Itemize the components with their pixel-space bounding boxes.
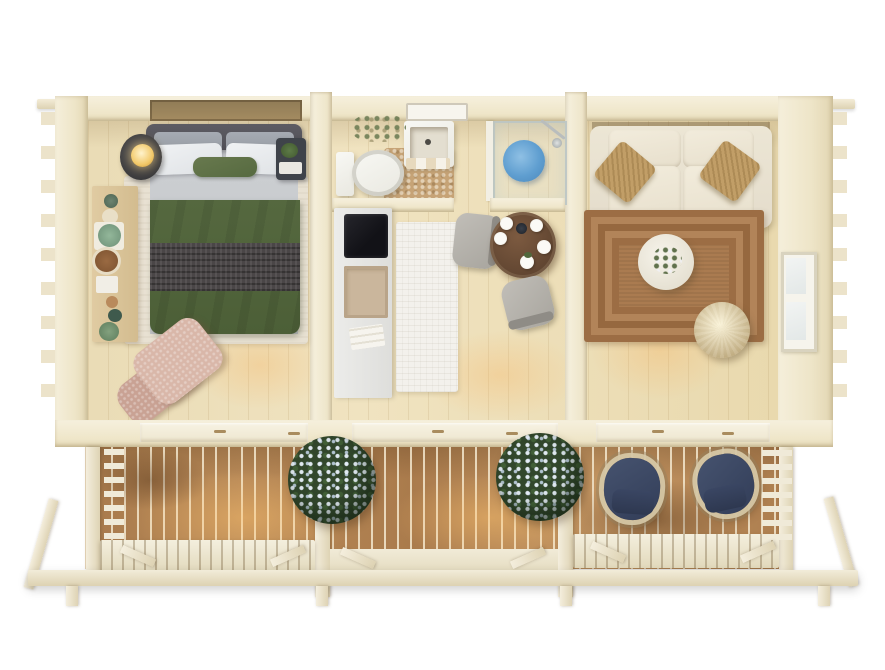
plant-pot: [104, 194, 118, 208]
kettle: [516, 223, 527, 234]
bedside-lamp: [131, 144, 154, 167]
garnish: [524, 252, 532, 258]
kitchen-sink: [344, 266, 388, 318]
beam-leg: [560, 586, 572, 606]
window-pane: [786, 302, 806, 340]
door-handle: [432, 430, 444, 433]
left-wall: [55, 96, 88, 447]
kitchen-towel: [349, 324, 386, 351]
door-handle: [288, 432, 300, 435]
door-handle: [214, 430, 226, 433]
green-bowl: [98, 224, 121, 247]
bed-knit-throw: [150, 243, 300, 291]
foundation-beam: [28, 570, 858, 586]
beam-leg: [316, 586, 328, 606]
dried-plants: [352, 114, 406, 142]
plant-pot: [281, 143, 298, 158]
small-pot: [106, 296, 118, 308]
plate: [494, 232, 507, 245]
scene-caption: Top-down 3D render of a wooden garden ca…: [0, 0, 1, 1]
deck-post: [86, 447, 100, 579]
books: [279, 162, 302, 174]
living-door-top: [596, 423, 770, 442]
white-box: [96, 276, 118, 293]
mirror-light: [406, 103, 468, 121]
sink-drain: [425, 139, 431, 145]
bathroom-wall: [490, 198, 565, 212]
small-pot: [108, 309, 122, 322]
plate: [530, 219, 543, 232]
door-handle: [506, 432, 518, 435]
window-pane: [786, 258, 806, 294]
deck-chair-seat: [611, 489, 655, 516]
beam-leg: [818, 586, 830, 606]
railing-right-side: [762, 450, 792, 542]
shower-mat: [503, 140, 545, 182]
rattan-pouf: [694, 302, 750, 358]
door-handle: [722, 432, 734, 435]
planter-right: [496, 433, 584, 521]
cabin-render: Top-down 3D render of a wooden garden ca…: [0, 0, 885, 670]
beam-leg: [66, 586, 78, 606]
door-handle: [652, 430, 664, 433]
bedroom-back-window: [150, 100, 302, 121]
kitchen-rug: [396, 222, 458, 392]
plate: [537, 240, 551, 254]
bed-accent-pillow: [193, 157, 257, 177]
shower-head: [552, 138, 562, 148]
toilet-bowl: [352, 150, 404, 196]
shower-frame: [486, 121, 493, 201]
brown-bowl: [95, 250, 118, 272]
planter-left: [288, 436, 376, 524]
plant-pot: [99, 322, 119, 341]
towels: [406, 158, 450, 169]
plate: [500, 217, 513, 230]
log-joints-right: [832, 112, 847, 418]
log-joints-left: [41, 112, 56, 418]
flower-arrangement: [652, 246, 682, 274]
cooktop: [344, 214, 388, 258]
partition-wall-1: [310, 92, 332, 447]
